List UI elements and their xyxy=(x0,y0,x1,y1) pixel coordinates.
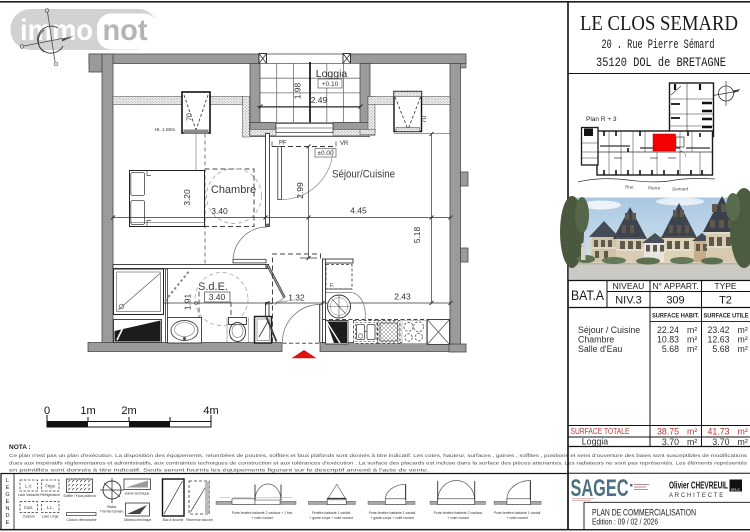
svg-text:m²: m² xyxy=(738,325,748,335)
svg-text:5.18: 5.18 xyxy=(412,226,422,243)
svg-text:Séjour/Cuisine: Séjour/Cuisine xyxy=(332,169,395,181)
svg-text:0: 0 xyxy=(44,405,50,417)
svg-text:Ht. 1.80m: Ht. 1.80m xyxy=(155,127,176,133)
svg-text:1.98: 1.98 xyxy=(293,82,303,99)
svg-text:2m: 2m xyxy=(121,405,136,417)
svg-text:m²: m² xyxy=(687,335,697,345)
svg-text:70: 70 xyxy=(421,116,428,124)
svg-text:Loggia: Loggia xyxy=(316,68,348,80)
svg-text:Porte-fenêtre battante 2 vanta: Porte-fenêtre battante 2 vantaux xyxy=(434,511,483,515)
svg-text:SURFACE UTILE: SURFACE UTILE xyxy=(704,313,749,320)
svg-text:immo: immo xyxy=(20,14,93,47)
svg-text:3.70: 3.70 xyxy=(712,437,729,447)
svg-text:Chambre: Chambre xyxy=(578,335,614,345)
svg-text:m²: m² xyxy=(738,335,748,345)
svg-text:Pierre: Pierre xyxy=(648,186,661,191)
svg-text:4m: 4m xyxy=(203,405,218,417)
svg-text:DPLG: DPLG xyxy=(731,488,740,492)
svg-text:F.: F. xyxy=(330,283,335,289)
svg-text:L: L xyxy=(6,478,9,484)
svg-text:SAGEC: SAGEC xyxy=(571,475,629,502)
svg-text:Loggia: Loggia xyxy=(582,437,609,447)
svg-text:+0.10: +0.10 xyxy=(322,81,339,88)
svg-text:Thermo-Dynam.: Thermo-Dynam. xyxy=(100,510,125,514)
svg-text:Frigo: Frigo xyxy=(45,484,55,489)
svg-text:G: G xyxy=(5,492,9,498)
svg-text:12.63: 12.63 xyxy=(707,335,729,345)
svg-text:Cuis.: Cuis. xyxy=(24,505,34,510)
svg-text:Séjour / Cuisine: Séjour / Cuisine xyxy=(578,325,640,335)
svg-text:Olivier CHEVREUIL: Olivier CHEVREUIL xyxy=(669,481,728,492)
svg-text:23.42: 23.42 xyxy=(707,325,729,335)
svg-text:E: E xyxy=(6,520,10,526)
svg-text:SURFACE HABIT.: SURFACE HABIT. xyxy=(652,313,699,320)
svg-text:Salle d'Eau: Salle d'Eau xyxy=(578,344,622,354)
svg-text:2.43: 2.43 xyxy=(394,292,411,302)
svg-text:70: 70 xyxy=(187,113,194,121)
svg-text:Radia.: Radia. xyxy=(107,505,117,509)
svg-text:2.49: 2.49 xyxy=(311,95,328,105)
svg-text:BAT.A: BAT.A xyxy=(571,288,604,303)
svg-text:TYPE: TYPE xyxy=(714,281,737,291)
svg-text:NOTA :: NOTA : xyxy=(9,444,31,451)
svg-text:3.40: 3.40 xyxy=(211,206,228,216)
svg-text:Edition : 09 / 02 / 2026: Edition : 09 / 02 / 2026 xyxy=(592,518,658,527)
svg-text:Porte-fenêtre battante 2 vanta: Porte-fenêtre battante 2 vantaux + 1 fix… xyxy=(232,511,293,515)
svg-text:38.75: 38.75 xyxy=(657,427,679,437)
svg-text:+ volet roulant: + volet roulant xyxy=(251,516,272,520)
svg-text:NIV.3: NIV.3 xyxy=(615,295,642,307)
svg-text:L.V.: L.V. xyxy=(25,484,32,489)
svg-text:PF: PF xyxy=(279,141,287,147)
svg-text:5.68: 5.68 xyxy=(712,344,729,354)
svg-text:Semard: Semard xyxy=(672,187,689,192)
svg-text:Gaine technique: Gaine technique xyxy=(125,492,150,496)
svg-text:+ volet roulant: + volet roulant xyxy=(506,516,527,520)
svg-text:Rue: Rue xyxy=(625,185,634,190)
svg-text:NIVEAU: NIVEAU xyxy=(613,281,645,291)
svg-text:T2: T2 xyxy=(719,295,732,307)
svg-text:+ garde-corps + volet roulant: + garde-corps + volet roulant xyxy=(309,516,352,520)
svg-text:N: N xyxy=(6,506,10,512)
svg-text:Chambre: Chambre xyxy=(211,184,256,196)
svg-text:N° APPART.: N° APPART. xyxy=(652,281,698,291)
svg-text:Porte-fenêtre battante 1 vanta: Porte-fenêtre battante 1 vantail xyxy=(494,511,541,515)
svg-text:PLAN DE COMMERCIALISATION: PLAN DE COMMERCIALISATION xyxy=(592,508,696,518)
svg-text:35120 DOL de BRETAGNE: 35120 DOL de BRETAGNE xyxy=(596,56,726,70)
svg-text:E: E xyxy=(6,499,10,505)
svg-text:309: 309 xyxy=(666,295,684,307)
svg-text:Receveur douche: Receveur douche xyxy=(186,518,213,522)
svg-text:en pointillés sont donnés à ti: en pointillés sont donnés à titre indica… xyxy=(9,468,429,473)
svg-text:+ volet roulant: + volet roulant xyxy=(447,516,468,520)
svg-text:5.68: 5.68 xyxy=(662,344,679,354)
svg-text:±0.00: ±0.00 xyxy=(317,150,334,157)
svg-text:2.99: 2.99 xyxy=(295,182,305,199)
svg-text:+ garde-corps + volet roulant: + garde-corps + volet roulant xyxy=(370,516,413,520)
svg-text:Fenêtre battante 1 vantail: Fenêtre battante 1 vantail xyxy=(312,511,351,515)
svg-text:LE CLOS SEMARD: LE CLOS SEMARD xyxy=(580,11,738,35)
svg-text:3.20: 3.20 xyxy=(182,189,192,206)
svg-text:Bac à douche: Bac à douche xyxy=(163,518,184,522)
svg-text:m²: m² xyxy=(687,437,697,447)
svg-text:Cloison démontable: Cloison démontable xyxy=(67,518,97,522)
svg-text:D: D xyxy=(6,513,10,519)
svg-text:L.L.: L.L. xyxy=(47,505,54,510)
svg-text:22.24: 22.24 xyxy=(657,325,679,335)
svg-text:3.40: 3.40 xyxy=(209,292,226,302)
svg-text:Porte-fenêtre battante 1 vanta: Porte-fenêtre battante 1 vantail xyxy=(369,511,416,515)
svg-text:3.70: 3.70 xyxy=(662,437,679,447)
svg-text:1m: 1m xyxy=(80,405,95,417)
svg-text:1.91: 1.91 xyxy=(183,293,193,310)
svg-text:dues aux impératifs réglementa: dues aux impératifs réglementaires et ad… xyxy=(9,461,748,466)
svg-text:1.32: 1.32 xyxy=(288,293,305,303)
svg-text:VR: VR xyxy=(340,141,349,147)
svg-text:Lave Linge: Lave Linge xyxy=(42,515,59,519)
svg-text:Tableau électrique: Tableau électrique xyxy=(124,518,152,522)
svg-text:Lave Vaisselle: Lave Vaisselle xyxy=(18,493,40,497)
svg-text:41.73: 41.73 xyxy=(707,427,729,437)
svg-text:Plan R + 3: Plan R + 3 xyxy=(586,116,617,123)
svg-text:m²: m² xyxy=(687,325,697,335)
svg-text:Cuisson: Cuisson xyxy=(23,515,35,519)
svg-text:10.83: 10.83 xyxy=(657,335,679,345)
svg-text:m²: m² xyxy=(738,344,748,354)
svg-text:4.45: 4.45 xyxy=(350,206,367,216)
svg-text:m²: m² xyxy=(738,427,748,437)
svg-text:not: not xyxy=(103,14,148,47)
svg-text:E: E xyxy=(6,485,10,491)
svg-text:20 . Rue Pierre Sémard: 20 . Rue Pierre Sémard xyxy=(602,38,715,52)
svg-text:Ce plan n'est pas un plan d'ex: Ce plan n'est pas un plan d'exécution. L… xyxy=(9,453,748,458)
svg-text:Soffite / Faux-plafond: Soffite / Faux-plafond xyxy=(63,494,95,498)
svg-text:m²: m² xyxy=(738,437,748,447)
svg-text:m²: m² xyxy=(687,344,697,354)
svg-text:Réfrigérateur: Réfrigérateur xyxy=(40,493,61,497)
svg-text:m²: m² xyxy=(687,427,697,437)
svg-text:SURFACE TOTALE: SURFACE TOTALE xyxy=(571,426,630,436)
svg-text:ARCHITECTE: ARCHITECTE xyxy=(669,492,725,499)
